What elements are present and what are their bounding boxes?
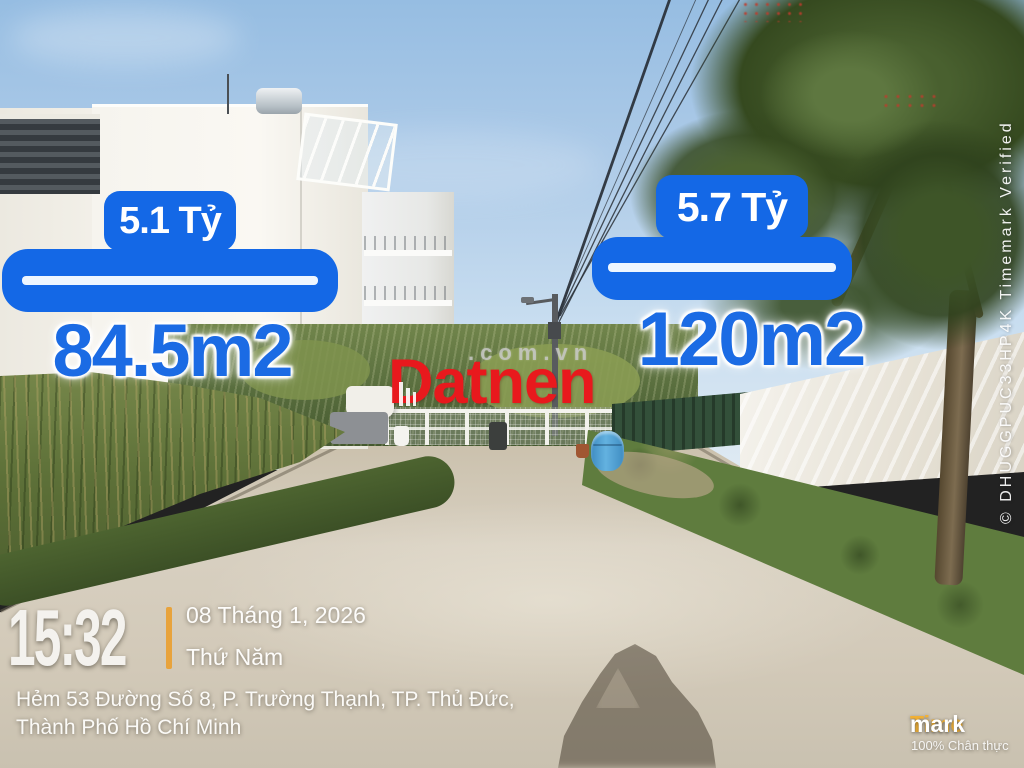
timestamp-divider	[166, 607, 172, 669]
rooftop-water-tank	[256, 88, 302, 114]
price-tag-left: 5.1 Tỷ	[104, 191, 236, 251]
pole-transformer-box	[548, 322, 561, 339]
timemark-logo-part2: mark	[910, 711, 965, 738]
blue-plastic-barrel	[591, 431, 624, 471]
price-bar-stripe-right	[608, 263, 836, 272]
timestamp-time: 15:32	[8, 592, 126, 684]
timestamp-date: 08 Tháng 1, 2026	[186, 602, 366, 629]
balcony-slab	[364, 300, 452, 306]
area-label-left: 84.5m2	[22, 308, 322, 393]
address-line1: Hẻm 53 Đường Số 8, P. Trường Thạnh, TP. …	[16, 688, 515, 712]
corrugated-roof-panel	[0, 114, 100, 194]
rooftop-pergola	[296, 113, 398, 192]
watermark-brand: Datnen	[388, 346, 596, 418]
red-tree-flowers	[880, 92, 936, 110]
photo-canvas: 5.1 Tỷ 84.5m2 5.7 Tỷ 120m2 .com.vn Datne…	[0, 0, 1024, 768]
price-left-label: 5.1 Tỷ	[119, 200, 221, 243]
building-icon	[397, 378, 419, 408]
address-line2: Thành Phố Hồ Chí Minh	[16, 716, 241, 740]
verification-code-text: © DHUGGPUC33HP4K Timemark Verified	[998, 24, 1016, 524]
antenna	[227, 74, 229, 114]
balcony-railing	[364, 236, 452, 250]
terracotta-pot	[576, 444, 589, 458]
timestamp-weekday: Thứ Năm	[186, 644, 283, 671]
gray-equipment	[330, 412, 388, 444]
price-bar-stripe-left	[22, 276, 318, 285]
balcony-slab	[364, 250, 452, 256]
timemark-tagline: 100% Chân thực	[911, 738, 1009, 753]
barrel-band	[593, 444, 622, 446]
white-bucket	[394, 426, 409, 446]
dark-object-at-gate	[489, 422, 507, 450]
street-lamp	[521, 297, 534, 303]
balcony-railing	[364, 286, 452, 300]
price-right-label: 5.7 Tỷ	[677, 184, 787, 231]
price-tag-right: 5.7 Tỷ	[656, 175, 808, 239]
area-label-right: 120m2	[626, 296, 876, 383]
red-tree-flowers	[740, 0, 810, 22]
